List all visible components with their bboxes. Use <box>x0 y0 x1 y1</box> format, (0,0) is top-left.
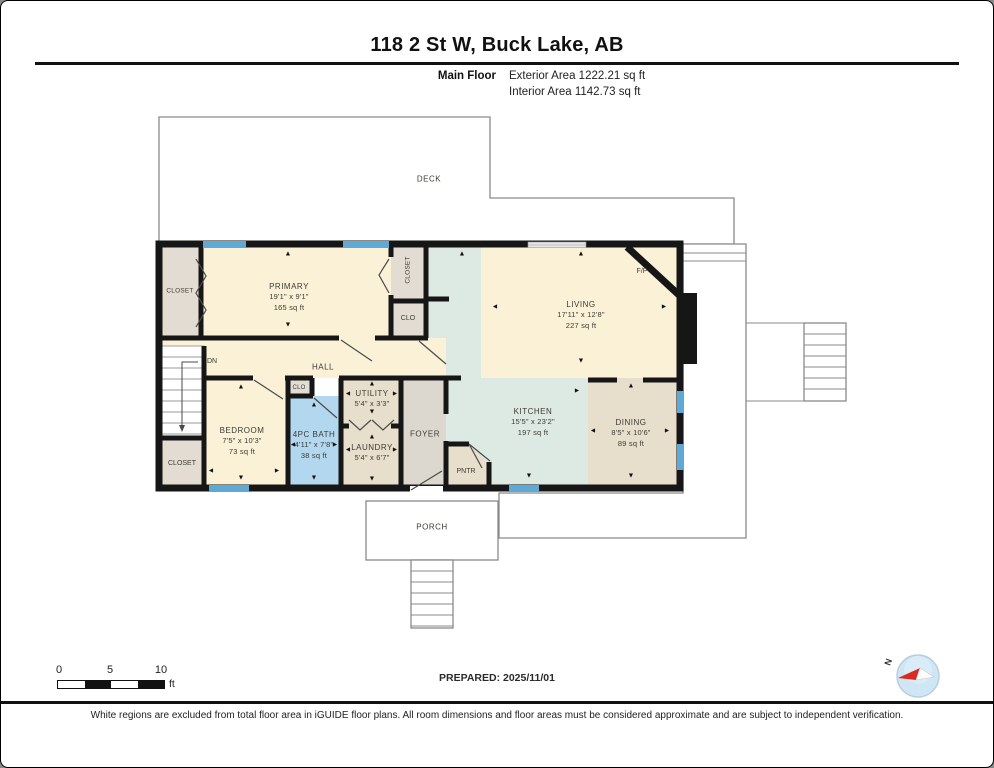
dimension-arrow-icon: ◄ <box>290 442 297 449</box>
dimension-arrow-icon: ▲ <box>285 251 292 258</box>
room-label-clo-primary: CLO <box>401 314 415 324</box>
dimension-arrow-icon: ▼ <box>238 475 245 482</box>
compass-icon <box>889 647 945 703</box>
dimension-arrow-icon: ▲ <box>459 251 466 258</box>
fireplace-bump <box>680 293 697 364</box>
dimension-arrow-icon: ▼ <box>369 409 376 416</box>
dimension-arrow-icon: ▲ <box>578 251 585 258</box>
dimension-arrow-icon: ▼ <box>311 475 318 482</box>
room-label-closet-bottom-left: CLOSET <box>168 459 196 469</box>
dimension-arrow-icon: ▼ <box>369 476 376 483</box>
room-label-bedroom: BEDROOM 7'5" x 10'3" 73 sq ft <box>220 425 265 457</box>
prepared-date: PREPARED: 2025/11/01 <box>1 672 993 684</box>
floorplan-page: 118 2 St W, Buck Lake, AB Main Floor Ext… <box>0 0 994 768</box>
dimension-arrow-icon: ◄ <box>345 391 352 398</box>
room-label-pantry: PNTR <box>456 467 475 477</box>
dimension-arrow-icon: ► <box>661 304 668 311</box>
room-label-closet-top-left: CLOSET <box>166 286 193 295</box>
room-label-dining: DINING 8'5" x 10'6" 89 sq ft <box>611 417 650 449</box>
room-label-primary: PRIMARY 19'1" x 9'1" 165 sq ft <box>269 281 309 313</box>
dimension-arrow-icon: ◄ <box>492 304 499 311</box>
dimension-arrow-icon: ► <box>664 428 671 435</box>
dimension-arrow-icon: ▲ <box>628 383 635 390</box>
dimension-arrow-icon: ▼ <box>526 473 533 480</box>
room-label-bath: 4PC BATH 4'11" x 7'8" 38 sq ft <box>293 429 336 461</box>
dimension-arrow-icon: ► <box>332 442 339 449</box>
floorplan-drawing <box>1 1 994 768</box>
room-label-utility: UTILITY 5'4" x 3'3" <box>355 388 390 410</box>
stairs-dn-label: DN <box>207 357 217 367</box>
fireplace-label: F/P <box>637 267 648 277</box>
room-label-kitchen: KITCHEN 15'5" x 23'2" 197 sq ft <box>511 406 555 438</box>
dimension-arrow-icon: ◄ <box>208 468 215 475</box>
dimension-arrow-icon: ▲ <box>369 381 376 388</box>
dimension-arrow-icon: ▲ <box>311 402 318 409</box>
dimension-arrow-icon: ► <box>574 388 581 395</box>
dimension-arrow-icon: ▲ <box>369 434 376 441</box>
disclaimer-text: White regions are excluded from total fl… <box>1 710 993 721</box>
patio-door <box>528 242 586 248</box>
dimension-arrow-icon: ► <box>392 447 399 454</box>
dimension-arrow-icon: ◄ <box>345 447 352 454</box>
room-label-deck: DECK <box>417 173 441 184</box>
room-label-clo-bedroom: CLO <box>293 384 306 392</box>
dimension-arrow-icon: ▼ <box>285 322 292 329</box>
footer-divider <box>1 701 993 704</box>
dimension-arrow-icon: ▲ <box>238 384 245 391</box>
room-label-living: LIVING 17'11" x 12'8" 227 sq ft <box>557 299 605 331</box>
room-label-laundry: LAUNDRY 5'4" x 6'7" <box>351 442 393 464</box>
dimension-arrow-icon: ► <box>392 391 399 398</box>
dimension-arrow-icon: ▼ <box>578 358 585 365</box>
room-label-porch: PORCH <box>416 521 447 532</box>
room-label-foyer: FOYER <box>410 428 440 439</box>
dimension-arrow-icon: ▼ <box>628 473 635 480</box>
room-label-hall: HALL <box>312 361 334 372</box>
dimension-arrow-icon: ► <box>274 468 281 475</box>
dimension-arrow-icon: ◄ <box>590 428 597 435</box>
room-label-closet-primary: CLOSET <box>403 256 412 283</box>
